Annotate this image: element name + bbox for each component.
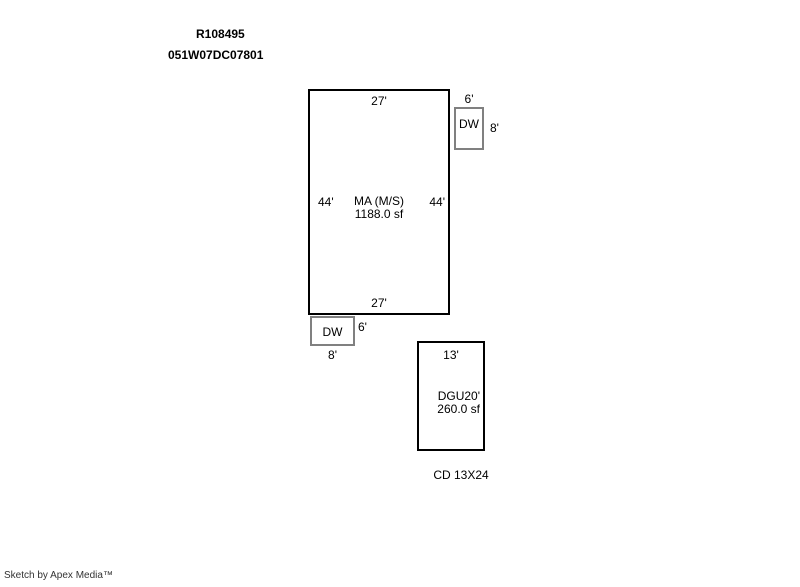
main-area-label-block: MA (M/S) 1188.0 sf xyxy=(310,195,448,221)
garage-outline: 13' DGU20' 260.0 sf xyxy=(417,341,485,451)
deck-bottom-left-outline: DW xyxy=(310,316,355,346)
garage-label: DGU xyxy=(438,389,465,403)
parcel-id-label: R108495 xyxy=(196,28,245,41)
sketch-canvas: R108495 051W07DC07801 27' 44' 44' MA (M/… xyxy=(0,0,800,587)
main-area-sqft: 1188.0 sf xyxy=(310,208,448,221)
deck-top-right-outline: DW xyxy=(454,107,484,150)
deck-bottom-left-label: DW xyxy=(312,326,353,338)
deck-bottom-left-bottom-dimension: 8' xyxy=(310,349,355,361)
garage-sqft: 260.0 sf xyxy=(437,403,480,416)
deck-top-right-label: DW xyxy=(456,118,482,130)
deck-bottom-left-right-dimension: 6' xyxy=(358,321,367,333)
garage-right-dimension: 20' xyxy=(464,389,480,403)
sketch-credit: Sketch by Apex Media™ xyxy=(4,570,113,581)
deck-top-right-right-dimension: 8' xyxy=(490,122,499,134)
deck-top-right-top-dimension: 6' xyxy=(454,93,484,105)
main-area-bottom-dimension: 27' xyxy=(310,297,448,309)
main-area-top-dimension: 27' xyxy=(310,95,448,107)
map-taxlot-label: 051W07DC07801 xyxy=(168,49,263,62)
garage-top-dimension: 13' xyxy=(419,349,483,361)
garage-label-block: DGU20' 260.0 sf xyxy=(437,390,480,416)
garage-caption: CD 13X24 xyxy=(417,469,505,481)
main-area-outline: 27' 44' 44' MA (M/S) 1188.0 sf 27' xyxy=(308,89,450,315)
